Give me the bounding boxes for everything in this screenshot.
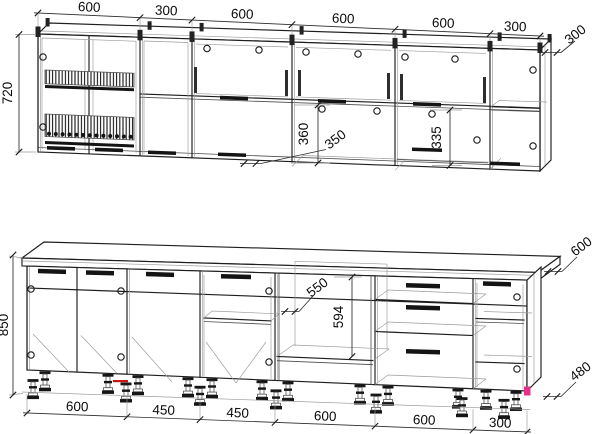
dim-label-upper-height: 720 xyxy=(0,82,15,105)
dim-label-upper-width-2: 300 xyxy=(155,3,178,19)
plate-rack-upper xyxy=(45,70,134,87)
dim-label-upper-width-5: 600 xyxy=(432,15,455,31)
dim-label-lower-width-1: 600 xyxy=(66,399,89,415)
upper-height-dimension: 720 xyxy=(0,31,36,155)
dim-label-upper-width-1: 600 xyxy=(78,0,101,15)
dim-label-niche-height: 360 xyxy=(296,123,311,146)
dim-label-upper-width-4: 600 xyxy=(332,11,355,27)
door-handle xyxy=(221,274,251,279)
upper-cabinet-row xyxy=(36,18,552,171)
kitchen-cabinet-technical-drawing: 600 300 600 600 600 300 720 300 360 350 xyxy=(0,0,600,434)
dim-label-lower-width-6: 300 xyxy=(489,415,512,431)
lower-height-dimension: 850 xyxy=(0,252,23,398)
door-handle xyxy=(483,281,511,286)
dim-label-niche2-height: 335 xyxy=(429,126,444,149)
drawing-canvas: 600 300 600 600 600 300 720 300 360 350 xyxy=(0,0,600,434)
dim-label-lower-width-4: 600 xyxy=(314,408,337,424)
drawer-handle xyxy=(146,272,174,277)
dim-label-oven-height: 594 xyxy=(331,305,346,328)
dim-label-lower-width-2: 450 xyxy=(152,402,175,418)
dim-label-lower-height: 850 xyxy=(0,314,11,337)
lower-cabinet-row xyxy=(22,242,560,419)
magenta-marker xyxy=(524,387,531,396)
dim-label-lower-width-5: 600 xyxy=(413,412,436,428)
drawer-handle xyxy=(86,270,114,275)
dim-label-upper-width-3: 600 xyxy=(231,6,254,22)
base-depth-leader: 480 xyxy=(543,359,594,400)
dim-label-upper-depth: 300 xyxy=(562,22,589,48)
dim-label-counter-depth: 600 xyxy=(568,234,595,260)
dim-label-base-depth: 480 xyxy=(567,359,594,385)
drawer-handle xyxy=(38,269,66,274)
red-marker-small xyxy=(113,380,128,382)
dim-label-upper-width-6: 300 xyxy=(504,19,527,35)
dim-label-lower-width-3: 450 xyxy=(226,405,249,421)
